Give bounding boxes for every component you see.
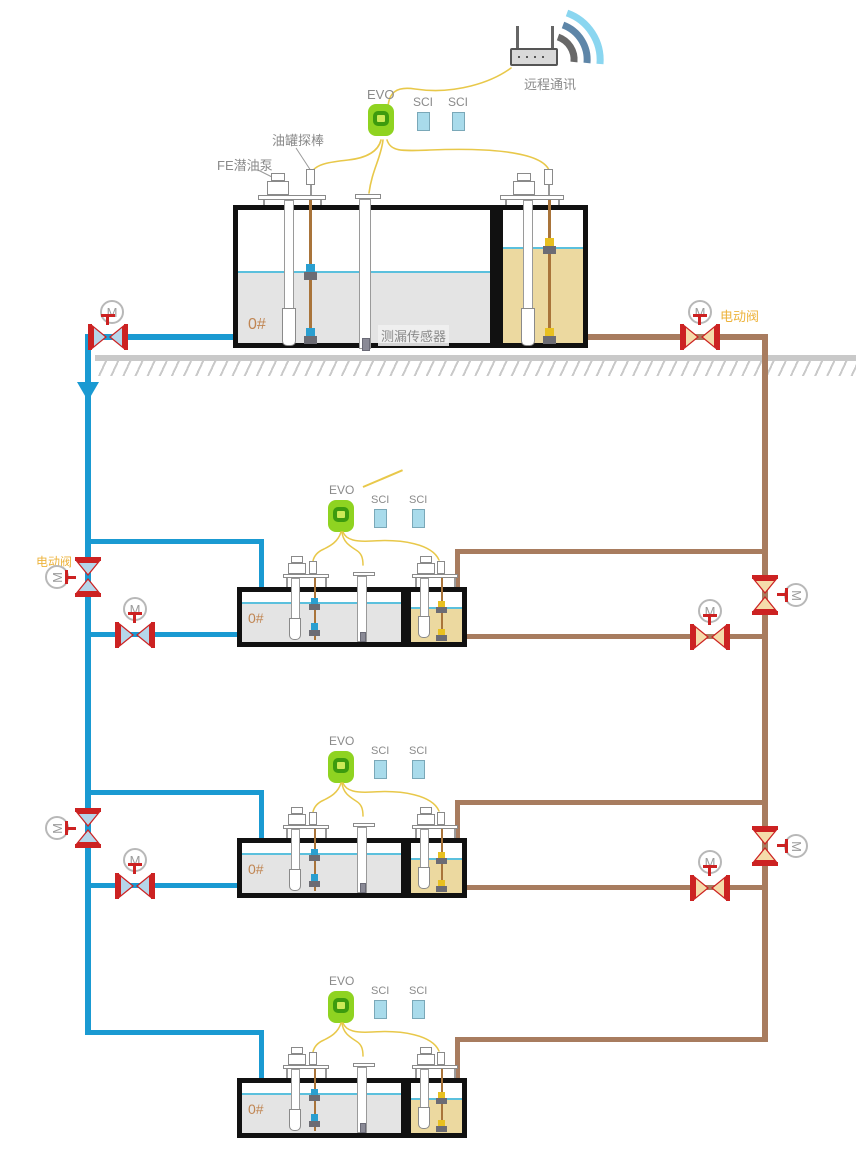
evo-label: EVO	[367, 87, 394, 102]
oil-grade-label: 0#	[248, 316, 266, 334]
motor-valve	[752, 575, 778, 615]
flange-leg	[325, 1069, 327, 1078]
flange-leg	[454, 829, 456, 838]
pipe-segment	[88, 632, 237, 637]
pump-motor-top	[420, 807, 432, 814]
fe-pump-label: FE潜油泵	[217, 155, 273, 174]
tank-divider	[401, 1083, 411, 1133]
probe-head	[306, 169, 315, 185]
submersible-pump	[418, 867, 430, 889]
flow-arrow-down	[77, 382, 99, 401]
pump-motor	[288, 1054, 306, 1065]
probe-float	[309, 630, 320, 636]
motor-valve	[115, 873, 155, 899]
submersible-pump	[289, 1109, 301, 1131]
sci-module	[452, 112, 465, 131]
sci-module	[374, 760, 387, 779]
probe-float	[309, 604, 320, 610]
tank-divider	[490, 210, 503, 343]
liquid-fill	[503, 249, 583, 343]
sci-label: SCI	[409, 745, 427, 757]
pump-flange	[412, 825, 458, 829]
flange-leg	[415, 578, 417, 587]
probe-float	[304, 272, 317, 280]
oil-grade-label: 0#	[248, 1101, 264, 1117]
flange-leg	[286, 578, 288, 587]
tank-probe-label: 油罐探棒	[272, 130, 324, 149]
flange-leg	[454, 578, 456, 587]
evo-label: EVO	[329, 734, 354, 748]
submersible-pump	[289, 869, 301, 891]
probe-float	[309, 1121, 320, 1127]
sci-label: SCI	[371, 985, 389, 997]
leak-sensor-cap	[360, 1123, 366, 1133]
sci-module	[412, 509, 425, 528]
leak-sensor-cap	[362, 338, 370, 351]
pump-motor-top	[291, 556, 303, 563]
probe-float	[309, 1095, 320, 1101]
tank-divider	[401, 592, 411, 642]
probe-float	[311, 1114, 318, 1121]
motor-valve	[690, 624, 730, 650]
pipe-segment	[85, 790, 264, 795]
pipe-segment	[457, 800, 768, 805]
pump-motor-top	[271, 173, 285, 181]
pump-motor	[513, 181, 535, 195]
submersible-pump	[418, 1107, 430, 1129]
probe-float	[309, 881, 320, 887]
probe-float	[436, 1126, 447, 1132]
evo-controller	[368, 104, 394, 136]
submersible-pump	[418, 616, 430, 638]
probe-float	[311, 623, 318, 630]
sci-label: SCI	[409, 494, 427, 506]
flange-leg	[286, 829, 288, 838]
main-pipe-brown-vertical	[762, 334, 768, 1042]
probe-stem	[548, 185, 550, 195]
evo-screen	[333, 507, 349, 522]
leak-sensor-cap	[360, 883, 366, 893]
motor-valve	[680, 324, 720, 350]
pipe-segment	[88, 883, 237, 888]
liquid-fill	[242, 1095, 401, 1133]
submersible-pump	[282, 308, 296, 346]
probe-float	[309, 855, 320, 861]
flange-leg	[325, 578, 327, 587]
evo-label: EVO	[329, 974, 354, 988]
motor-valve	[88, 324, 128, 350]
sci-module	[412, 1000, 425, 1019]
pump-flange	[412, 574, 458, 578]
liquid-fill	[242, 855, 401, 893]
main-pipe-blue-vertical	[85, 334, 91, 1035]
flange-leg	[325, 829, 327, 838]
flange-leg	[454, 1069, 456, 1078]
probe-float	[304, 336, 317, 344]
pump-motor	[417, 1054, 435, 1065]
pump-flange	[283, 1065, 329, 1069]
pump-motor	[288, 563, 306, 574]
oil-grade-label: 0#	[248, 861, 264, 877]
pump-motor-top	[420, 556, 432, 563]
probe-head	[544, 169, 553, 185]
flange-leg	[415, 829, 417, 838]
remote-link-line	[363, 469, 403, 488]
sci-label: SCI	[448, 95, 468, 109]
probe-head	[437, 1052, 445, 1065]
probe-float	[543, 336, 556, 344]
probe-float	[436, 886, 447, 892]
probe-head	[437, 561, 445, 574]
probe-float	[436, 635, 447, 641]
flange-leg	[286, 1069, 288, 1078]
ground-hatch	[95, 361, 856, 376]
sci-module	[374, 1000, 387, 1019]
probe-stem	[310, 185, 312, 195]
pipe-segment	[588, 334, 768, 340]
pump-flange	[283, 825, 329, 829]
pump-motor-top	[420, 1047, 432, 1054]
probe-head	[309, 812, 317, 825]
motor-valve	[75, 557, 101, 597]
motor-valve	[690, 875, 730, 901]
pump-motor	[288, 814, 306, 825]
pump-motor-top	[291, 1047, 303, 1054]
electric-valve-label: 电动阀	[720, 306, 759, 325]
flange-leg	[415, 1069, 417, 1078]
flange-leg	[320, 200, 322, 205]
pump-tube	[523, 200, 533, 310]
probe-float	[436, 858, 447, 864]
sci-module	[374, 509, 387, 528]
tank-divider	[401, 843, 411, 893]
sci-label: SCI	[413, 95, 433, 109]
motor-valve	[752, 826, 778, 866]
pump-flange	[412, 1065, 458, 1069]
probe-float	[543, 246, 556, 254]
pipe-segment	[457, 1037, 768, 1042]
pipe-segment	[85, 539, 264, 544]
pump-motor	[267, 181, 289, 195]
submersible-pump	[289, 618, 301, 640]
schematic-canvas: 远程通讯 EVO SCI SCI 油罐探棒 FE潜油泵 M M 电动阀 0#	[0, 0, 856, 1154]
leak-sensor-cap	[360, 632, 366, 642]
fuel-tank: 0#	[237, 1078, 467, 1138]
leak-sensor-label: 测漏传感器	[378, 325, 449, 346]
fuel-tank: 0#	[237, 587, 467, 647]
router-antenna	[516, 26, 519, 50]
wifi-icon	[548, 2, 614, 66]
submersible-pump	[521, 308, 535, 346]
sci-label: SCI	[409, 985, 427, 997]
probe-float	[311, 874, 318, 881]
evo-screen	[333, 998, 349, 1013]
flange-leg	[505, 200, 507, 205]
probe-head	[437, 812, 445, 825]
probe-head	[309, 561, 317, 574]
motor-valve	[75, 808, 101, 848]
sci-module	[417, 112, 430, 131]
flange-leg	[263, 200, 265, 205]
pump-tube	[284, 200, 294, 310]
pipe-segment	[457, 549, 768, 554]
probe-float	[436, 1098, 447, 1104]
liquid-fill	[242, 604, 401, 642]
pump-motor-top	[291, 807, 303, 814]
evo-label: EVO	[329, 483, 354, 497]
pipe-segment	[85, 1030, 264, 1035]
flange-leg	[558, 200, 560, 205]
leak-sensor-tube	[359, 199, 371, 349]
sci-label: SCI	[371, 745, 389, 757]
motor-indicator: M	[100, 300, 124, 324]
pump-flange	[283, 574, 329, 578]
probe-head	[309, 1052, 317, 1065]
tank-probe	[548, 200, 551, 340]
sci-module	[412, 760, 425, 779]
pump-motor	[417, 563, 435, 574]
motor-valve	[115, 622, 155, 648]
probe-float	[436, 607, 447, 613]
pump-motor	[417, 814, 435, 825]
evo-screen	[333, 758, 349, 773]
sci-label: SCI	[371, 494, 389, 506]
evo-screen	[373, 111, 389, 126]
fuel-tank: 0#	[237, 838, 467, 898]
pump-motor-top	[517, 173, 531, 181]
oil-grade-label: 0#	[248, 610, 264, 626]
